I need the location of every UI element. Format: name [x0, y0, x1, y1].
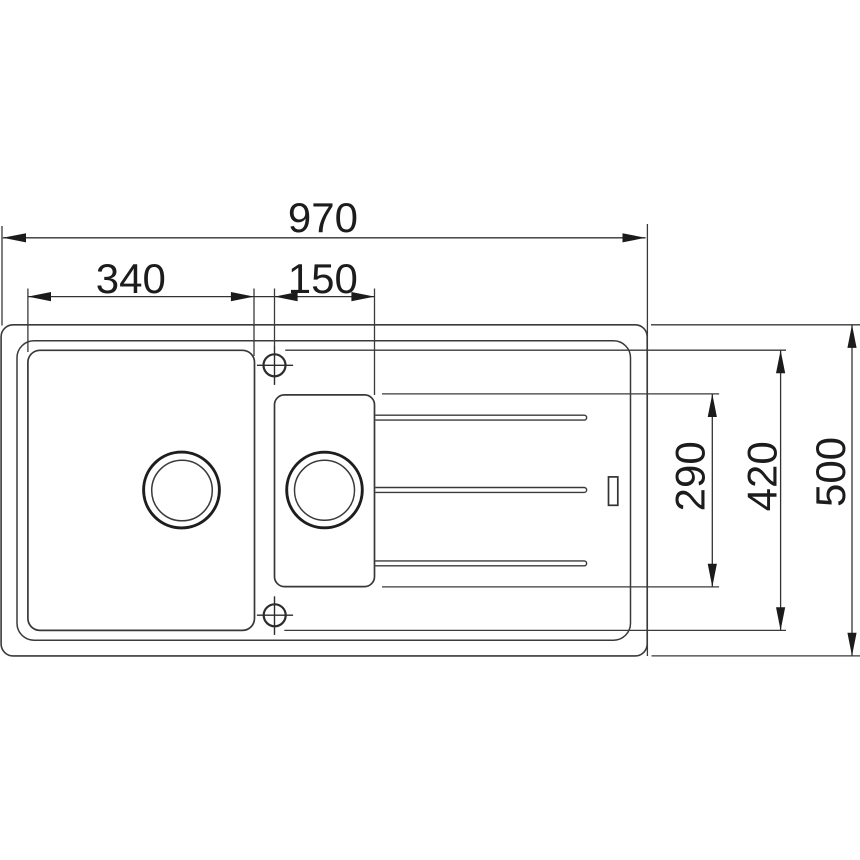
svg-text:150: 150 [288, 255, 358, 302]
svg-text:420: 420 [738, 441, 785, 511]
svg-text:290: 290 [667, 441, 714, 511]
svg-text:340: 340 [96, 255, 166, 302]
svg-text:500: 500 [807, 437, 854, 507]
svg-text:970: 970 [288, 194, 358, 241]
